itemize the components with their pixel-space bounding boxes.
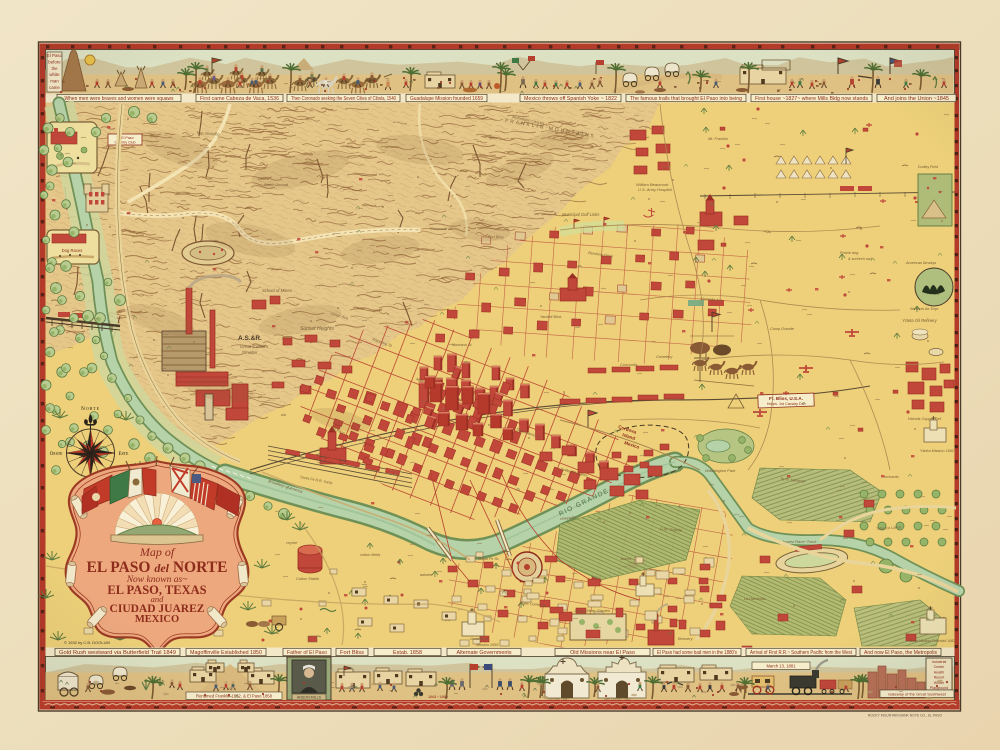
svg-text:Dudley Field: Dudley Field [918,165,938,169]
svg-text:ROCKY MOUNTAIN BANK NOTE CO.,: ROCKY MOUNTAIN BANK NOTE CO., EL PASO [868,714,943,718]
svg-text:U.S. Army Hospital: U.S. Army Hospital [638,187,672,192]
svg-text:adobes: adobes [420,573,433,577]
svg-text:And joins the Union ~1845: And joins the Union ~1845 [884,96,949,102]
svg-text:Gold Rush westward via Butterf: Gold Rush westward via Butterfield Trail… [59,650,176,656]
svg-text:Old Missions near El Paso: Old Missions near El Paso [570,650,635,656]
svg-text:March 13, 1881: March 13, 1881 [766,664,796,669]
svg-text:Center: Center [934,665,946,669]
svg-text:First came Cabeza de Vaca, 153: First came Cabeza de Vaca, 1536 [200,96,279,102]
svg-text:MEXICO: MEXICO [135,614,179,625]
svg-text:The famous trails that brought: The famous trails that brought El Paso i… [630,96,742,102]
svg-text:Montana St.: Montana St. [452,343,472,347]
svg-text:Then Coronado seeking the Seve: Then Coronado seeking the Seven Cities o… [291,96,396,102]
svg-text:Arrival of First R.R.~ Souther: Arrival of First R.R.~ Southern Pacific … [750,650,853,656]
svg-text:orchards: orchards [884,475,899,479]
svg-text:When men were braves and women: When men were braves and women were squa… [65,96,174,102]
svg-text:before: before [48,59,61,64]
svg-text:Gateway of the Great Southwest: Gateway of the Great Southwest [888,692,947,697]
svg-text:Brewery: Brewery [678,636,694,641]
svg-text:Industrial: Industrial [932,660,947,664]
svg-text:Dog Races: Dog Races [62,248,83,253]
svg-text:Ft. Bliss, U.S.A.: Ft. Bliss, U.S.A. [769,396,803,401]
svg-text:Western Air Expr.: Western Air Expr. [910,307,939,311]
svg-text:Mexico throws off Spanish Yoke: Mexico throws off Spanish Yoke ~ 1822 [524,96,617,102]
svg-text:Alternate Governments: Alternate Governments [457,650,513,656]
svg-text:El Paso had some bad men in th: El Paso had some bad men in the 1880's [657,650,737,656]
svg-text:Juarez Beer Garden: Juarez Beer Garden [573,608,611,613]
svg-text:Mt. Franklin: Mt. Franklin [708,137,728,141]
svg-text:Guadalupe Mission founded 1659: Guadalupe Mission founded 1659 [410,96,483,102]
svg-text:Father of El Paso: Father of El Paso [287,650,327,656]
svg-text:ANSON MILLS: ANSON MILLS [297,696,322,700]
svg-text:Santa Fe St.: Santa Fe St. [478,557,499,561]
svg-text:And now El Paso, the Metropoli: And now El Paso, the Metropolis [864,650,938,656]
svg-text:First house ~1827~ where Mills: First house ~1827~ where Mills Bldg now … [755,96,869,102]
svg-text:Cotton Stable: Cotton Stable [296,577,319,581]
svg-text:Fort Bliss: Fort Bliss [340,650,365,656]
svg-text:Health: Health [934,670,944,674]
svg-text:La Hacienda: La Hacienda [744,597,765,601]
svg-text:Map of: Map of [139,545,176,559]
svg-text:Magoffinville Established 1850: Magoffinville Established 1850 [190,650,262,656]
svg-text:& screech owl: & screech owl [848,257,872,261]
svg-text:EL PASO del NORTE: EL PASO del NORTE [87,559,228,576]
svg-text:cotton fields: cotton fields [360,553,380,557]
svg-text:coyote: coyote [286,541,297,545]
svg-text:Juarez: Juarez [619,557,631,561]
svg-text:Estab. 1858: Estab. 1858 [393,650,422,656]
svg-text:Guadalupe: Guadalupe [470,637,489,641]
svg-text:man: man [50,79,59,84]
svg-text:Washington Park: Washington Park [705,468,736,473]
svg-text:Resort: Resort [934,676,945,680]
svg-text:© 1932 by C.B. DOOLUM: © 1932 by C.B. DOOLUM [64,640,110,645]
svg-text:Municipal Golf Links: Municipal Golf Links [562,212,600,217]
svg-text:Concordia: Concordia [620,363,637,367]
svg-text:American Airways: American Airways [906,261,936,265]
svg-text:El Paso: El Paso [47,53,63,58]
svg-text:Richmond St.: Richmond St. [430,227,453,231]
svg-text:white: white [49,72,60,77]
svg-text:Smelter: Smelter [242,350,258,355]
svg-text:came: came [49,85,60,90]
svg-text:A.S.&R.: A.S.&R. [238,335,262,342]
svg-text:Renamed Franklin 1852, & El Pa: Renamed Franklin 1852, & El Paso 1858 [196,694,273,699]
svg-text:the: the [51,66,58,71]
svg-text:Yandell Blvd.: Yandell Blvd. [540,315,562,319]
svg-text:Great Custom: Great Custom [240,344,268,349]
svg-text:Playground: Playground [930,686,948,690]
svg-text:Ysleta Oil Refinery: Ysleta Oil Refinery [902,318,938,323]
svg-text:Ysleta Mission Founded 1682: Ysleta Mission Founded 1682 [908,639,955,643]
svg-text:Ysleta Mission 1682: Ysleta Mission 1682 [920,449,954,453]
svg-text:Camp Grande: Camp Grande [770,327,794,331]
svg-text:Prairie dog: Prairie dog [840,251,859,255]
svg-text:Cemetery: Cemetery [656,355,674,359]
svg-text:School of Mines: School of Mines [262,288,293,293]
svg-text:Mission 1659: Mission 1659 [476,643,499,647]
